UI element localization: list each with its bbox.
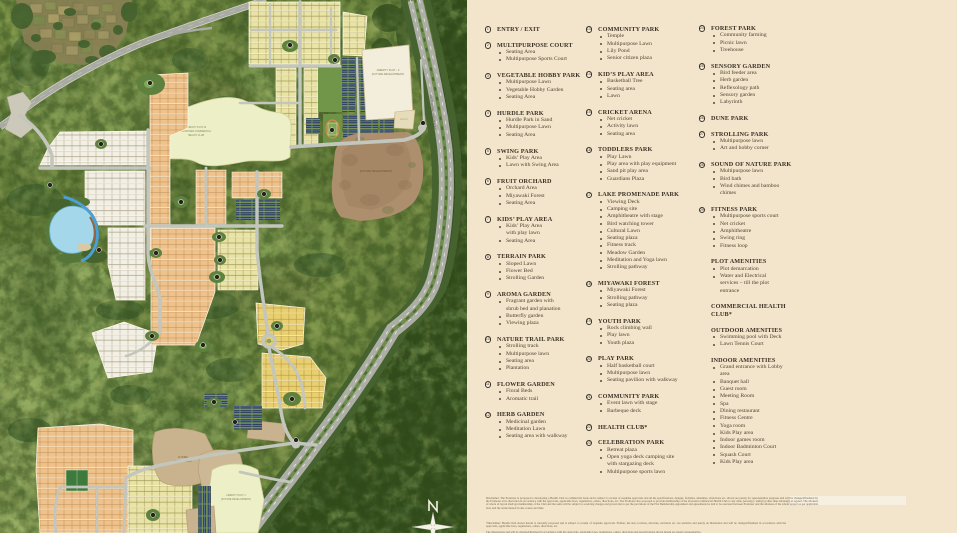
svg-text:PLOT 2: PLOT 2 (400, 119, 408, 121)
svg-text:(FUTURE DEVELOPMENT): (FUTURE DEVELOPMENT) (360, 169, 393, 173)
svg-text:(FUTURE DEVELOPMENT): (FUTURE DEVELOPMENT) (372, 72, 405, 76)
svg-text:AMENITY PLOT 1: AMENITY PLOT 1 (226, 494, 246, 497)
svg-text:(FUTURE DEVELOPMENT): (FUTURE DEVELOPMENT) (221, 498, 251, 501)
svg-text:HEALTH CLUB: HEALTH CLUB (188, 134, 205, 137)
svg-text:AMENITY PLOT - II: AMENITY PLOT - II (377, 68, 400, 72)
svg-text:PROPOSED COMMERCIAL: PROPOSED COMMERCIAL (181, 130, 212, 133)
svg-text:AMENITY PLOT-III: AMENITY PLOT-III (186, 126, 206, 129)
